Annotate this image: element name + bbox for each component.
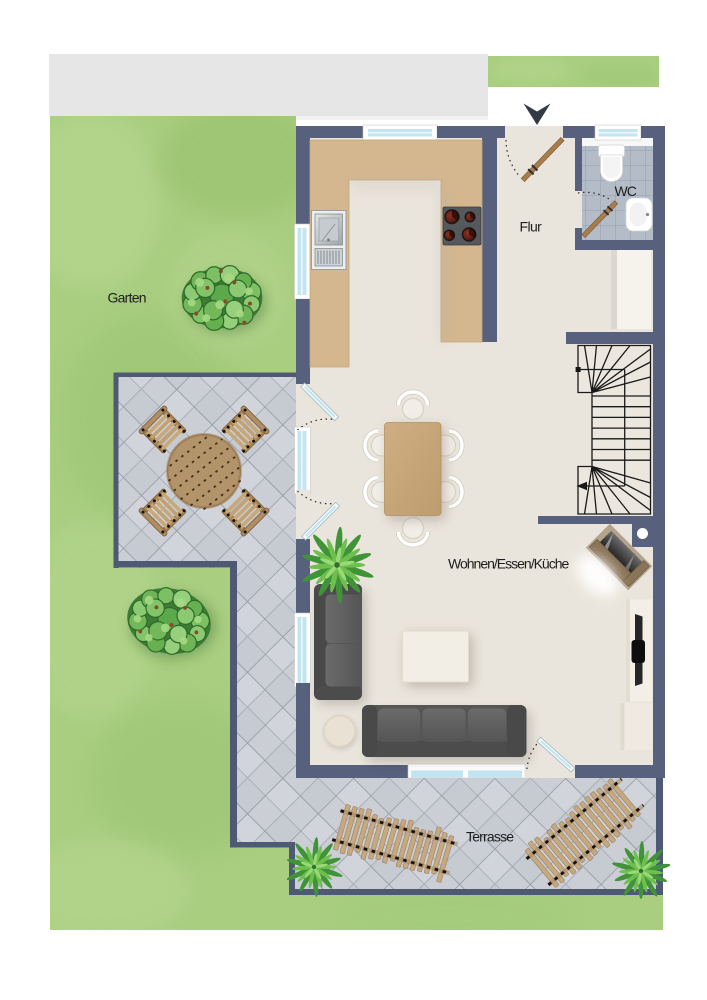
svg-text:Flur: Flur (520, 219, 543, 235)
svg-text:Garten: Garten (108, 290, 146, 306)
svg-text:WC: WC (615, 183, 637, 199)
svg-text:Terrasse: Terrasse (466, 829, 514, 845)
svg-text:Wohnen/Essen/Küche: Wohnen/Essen/Küche (448, 556, 569, 572)
